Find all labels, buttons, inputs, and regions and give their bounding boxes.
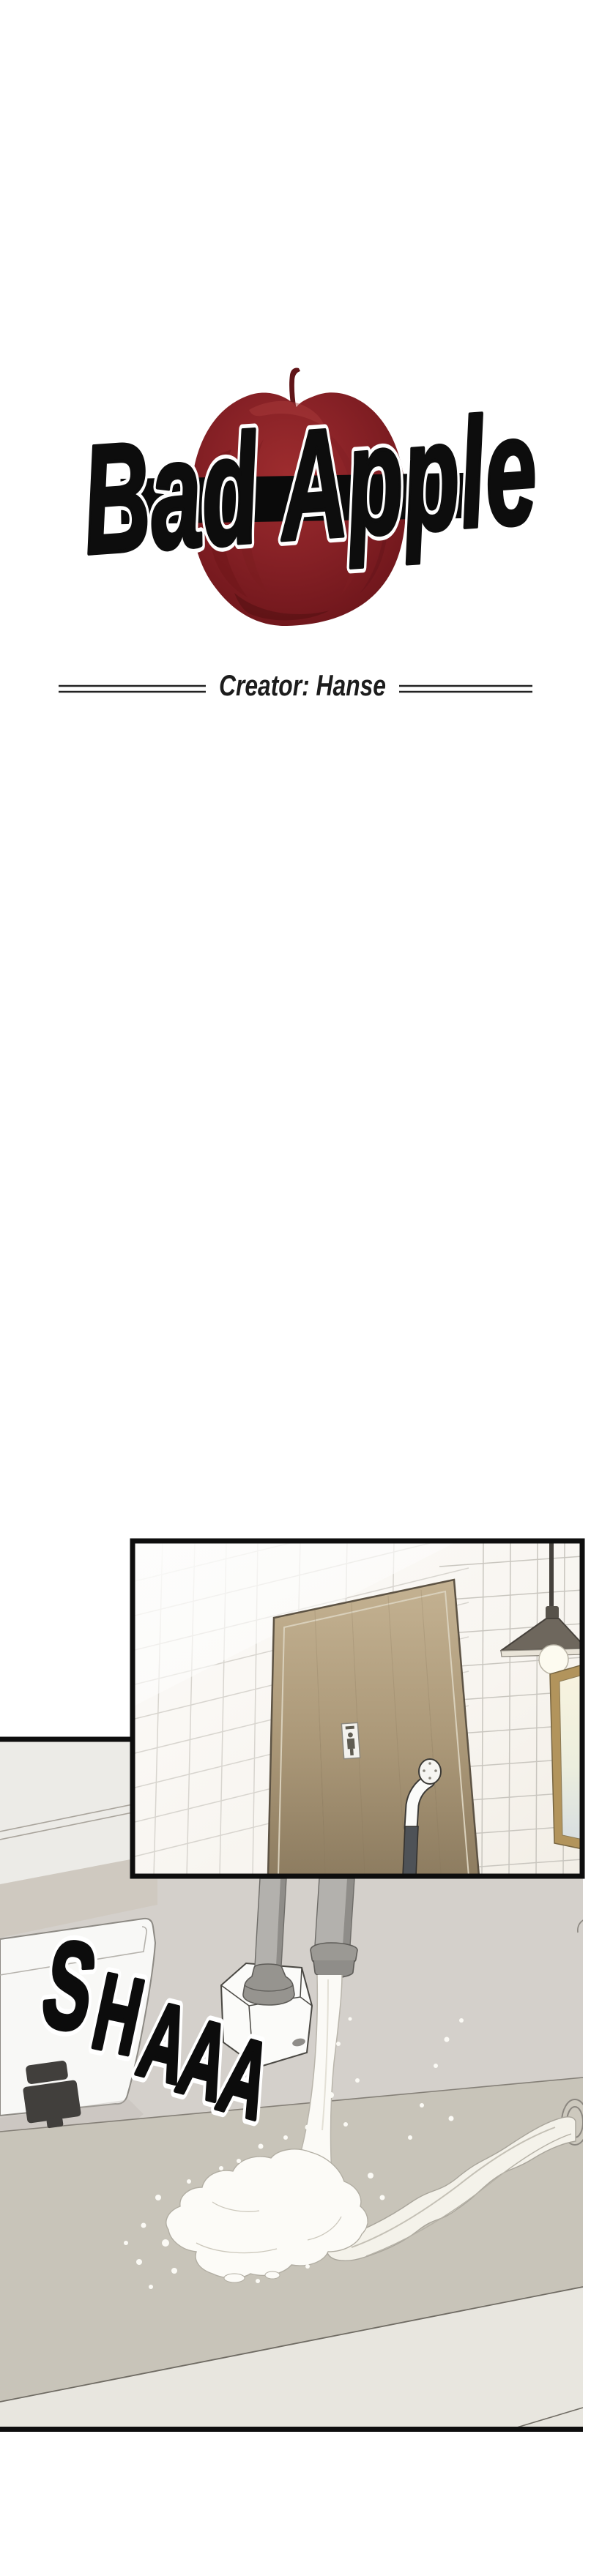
svg-text:Bad Apple: Bad Apple (77, 382, 542, 587)
svg-text:Creator: Hanse: Creator: Hanse (219, 670, 386, 702)
